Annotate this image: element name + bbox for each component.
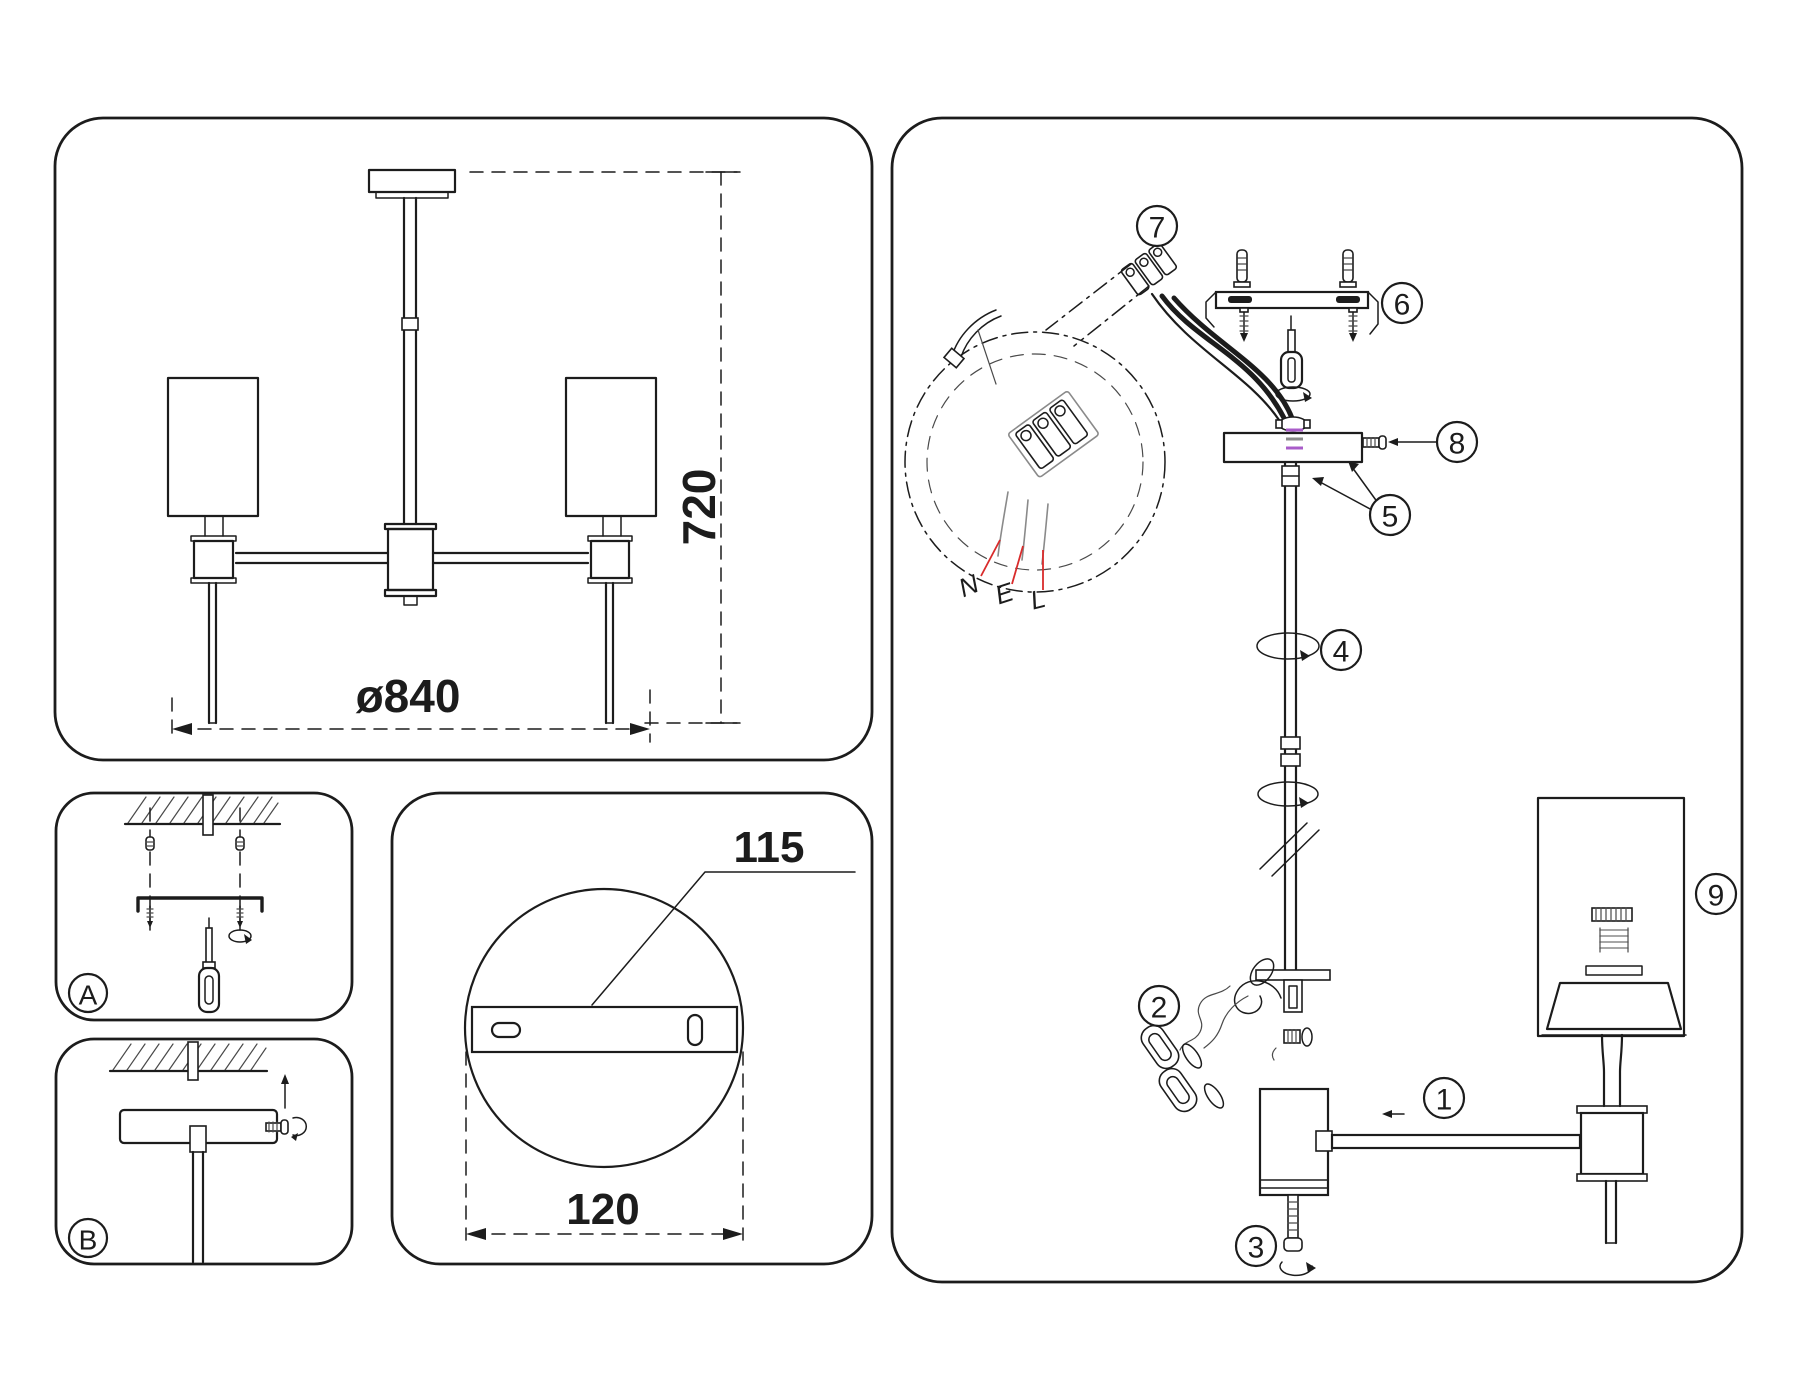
wire-label-earth: E xyxy=(991,576,1017,610)
mounting-bracket-kit xyxy=(1206,250,1378,342)
lamp-holder-column xyxy=(1577,1106,1647,1243)
up-arrow xyxy=(281,1074,289,1108)
callout-9: 9 xyxy=(1696,874,1736,914)
bracket-screws xyxy=(147,906,243,928)
detail-wires xyxy=(998,492,1048,564)
canopy-coupler xyxy=(190,1126,206,1152)
instruction-sheet: 720 ø840 xyxy=(0,0,1800,1400)
terminal-block-detail xyxy=(1008,391,1100,478)
bracket-end-right xyxy=(1368,292,1378,334)
callout-3-label: 3 xyxy=(1248,1232,1265,1265)
hole-spacing-label: 115 xyxy=(734,823,805,872)
wiring-detail: N E L xyxy=(905,310,1165,616)
callout8-leader xyxy=(1363,436,1437,449)
supply-wires xyxy=(1152,294,1292,420)
side-hub xyxy=(1581,1113,1643,1174)
wall-anchors xyxy=(146,837,244,850)
callout-4-label: 4 xyxy=(1333,636,1350,669)
panel-step-b: B xyxy=(56,1039,352,1264)
callout-6-label: 6 xyxy=(1394,289,1411,322)
center-hub xyxy=(388,529,433,590)
shade-holder-cup xyxy=(1547,983,1681,1029)
callout-7: 7 xyxy=(1137,206,1177,246)
stem-joint xyxy=(402,318,418,330)
shade-assembly xyxy=(1538,798,1686,1106)
arm-tube xyxy=(1332,1135,1580,1148)
side-screw xyxy=(266,1118,306,1142)
step-a-badge: A xyxy=(69,974,107,1012)
callout-3: 3 xyxy=(1236,1226,1276,1266)
height-label: 720 xyxy=(673,469,725,546)
panel-border xyxy=(55,118,872,760)
arm-tenon xyxy=(1316,1131,1332,1151)
callout-8-label: 8 xyxy=(1449,428,1466,461)
bracket-end-left xyxy=(1206,292,1216,327)
callout-5: 5 xyxy=(1370,495,1410,535)
finial-nut xyxy=(1284,1238,1302,1251)
plate-width-dimension: 120 xyxy=(466,1052,743,1240)
callout-2-label: 2 xyxy=(1151,992,1168,1025)
left-lamp-holder xyxy=(194,541,233,578)
canopy-assembly xyxy=(1224,417,1362,462)
ceiling-plate xyxy=(369,170,455,192)
detail-leader-2 xyxy=(1074,286,1149,346)
hanger-plate xyxy=(1256,970,1330,1012)
step-b-badge: B xyxy=(69,1219,107,1257)
wire-leader-lines xyxy=(981,540,1043,590)
rod-break-symbol xyxy=(1260,823,1319,876)
bracket-screw-right xyxy=(1349,308,1357,342)
rotate-symbol xyxy=(229,930,252,944)
detail-leader-1 xyxy=(1046,264,1131,330)
wire-label-live: L xyxy=(1027,583,1048,616)
shade-ring xyxy=(1586,966,1642,975)
hanger-screw xyxy=(1272,1028,1312,1060)
bulb-base xyxy=(1592,908,1632,921)
callout-1: 1 xyxy=(1424,1078,1464,1118)
callout-6: 6 xyxy=(1382,283,1422,323)
callout5-leaders xyxy=(1312,461,1378,510)
socket-thread xyxy=(1600,928,1628,952)
hole-spacing-dimension: 115 xyxy=(592,823,855,1005)
rotate-symbol-lower xyxy=(1258,782,1318,808)
panel-overall-dimensions: 720 ø840 xyxy=(55,118,872,760)
left-shade xyxy=(168,378,258,516)
step-a-label: A xyxy=(79,980,98,1011)
hub-nub xyxy=(404,596,417,605)
panel-assembly: N E L xyxy=(892,118,1742,1282)
right-lamp-holder xyxy=(591,541,629,578)
callout-7-label: 7 xyxy=(1149,212,1166,245)
callout-8: 8 xyxy=(1437,422,1477,462)
screwdriver-icon xyxy=(199,918,219,1012)
rod-coupler-mid-1 xyxy=(1281,737,1300,749)
screwdriver-icon xyxy=(1281,316,1302,388)
hub-bottom-flange xyxy=(385,590,436,596)
panel-plate-detail: 115 120 xyxy=(392,793,872,1264)
rotate-symbol-upper xyxy=(1257,633,1319,661)
suspension-rod xyxy=(1257,462,1319,970)
bracket-screw-left xyxy=(1240,308,1248,342)
wall-plug-right xyxy=(1340,250,1356,287)
callout-5-label: 5 xyxy=(1382,501,1399,534)
rod-coupler-mid-2 xyxy=(1281,754,1300,766)
right-shade xyxy=(566,378,656,516)
callout-9-label: 9 xyxy=(1708,880,1725,913)
plate-width-label: 120 xyxy=(566,1185,639,1234)
wall-plug-left xyxy=(1234,250,1250,287)
cable-tie-icon xyxy=(944,310,1001,384)
diameter-label: ø840 xyxy=(356,670,461,722)
step-b-label: B xyxy=(79,1225,98,1256)
panel-step-a: A xyxy=(56,793,352,1020)
socket-neck xyxy=(1602,1035,1622,1106)
insert-arrow xyxy=(1382,1110,1404,1118)
diameter-dimension: ø840 xyxy=(172,670,650,742)
threaded-rod xyxy=(188,1042,198,1080)
threaded-rod xyxy=(203,795,213,835)
diagram-canvas: 720 ø840 xyxy=(0,0,1800,1400)
wire-label-neutral: N xyxy=(954,568,983,603)
terminal-connector xyxy=(1120,243,1177,296)
chandelier-front-view xyxy=(168,170,656,723)
callout-2: 2 xyxy=(1139,986,1179,1026)
callout-4: 4 xyxy=(1321,630,1361,670)
callout-1-label: 1 xyxy=(1436,1084,1453,1117)
